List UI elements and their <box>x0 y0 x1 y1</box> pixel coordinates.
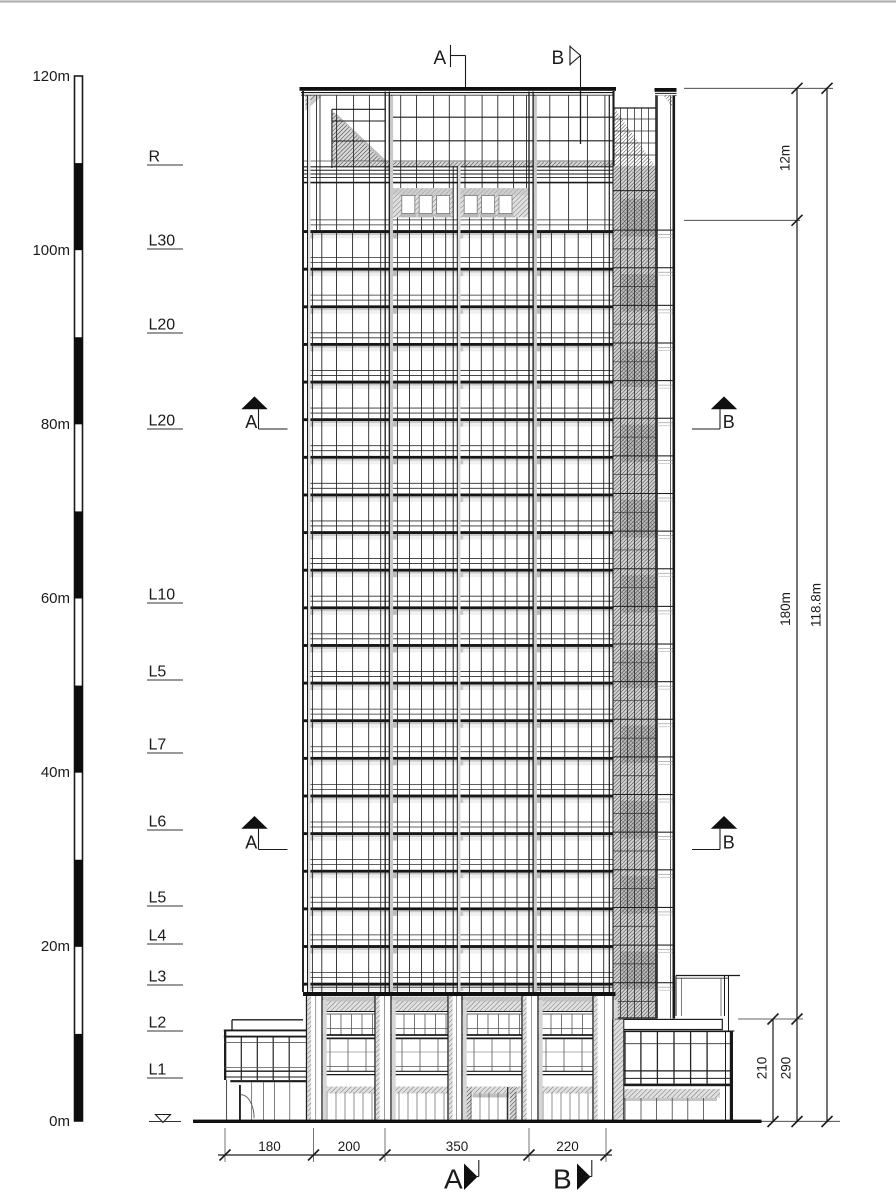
svg-text:60m: 60m <box>41 590 70 607</box>
svg-text:L5: L5 <box>149 890 167 907</box>
svg-text:L30: L30 <box>149 233 176 250</box>
svg-text:A: A <box>245 833 257 853</box>
svg-text:A: A <box>444 1164 463 1195</box>
svg-text:200: 200 <box>338 1139 361 1154</box>
svg-text:B: B <box>723 412 735 432</box>
svg-text:L10: L10 <box>149 587 176 604</box>
svg-text:L5: L5 <box>149 664 167 681</box>
svg-text:L20: L20 <box>149 317 176 334</box>
svg-text:100m: 100m <box>32 242 70 259</box>
svg-text:L3: L3 <box>149 969 167 986</box>
svg-text:120m: 120m <box>32 68 70 85</box>
svg-text:80m: 80m <box>41 416 70 433</box>
svg-text:180: 180 <box>258 1139 281 1154</box>
svg-text:L1: L1 <box>149 1062 167 1079</box>
svg-text:L2: L2 <box>149 1015 167 1032</box>
svg-text:350: 350 <box>446 1139 469 1154</box>
svg-text:A: A <box>434 48 447 69</box>
svg-text:L7: L7 <box>149 737 167 754</box>
svg-text:R: R <box>149 149 161 166</box>
svg-text:220: 220 <box>556 1139 579 1154</box>
svg-text:B: B <box>723 833 735 853</box>
svg-text:L6: L6 <box>149 814 167 831</box>
svg-text:L4: L4 <box>149 928 167 945</box>
svg-text:210: 210 <box>755 1057 770 1080</box>
svg-text:B: B <box>552 48 565 69</box>
svg-text:L20: L20 <box>149 413 176 430</box>
svg-text:118.8m: 118.8m <box>809 583 824 627</box>
svg-text:A: A <box>245 412 257 432</box>
svg-text:180m: 180m <box>778 592 793 626</box>
svg-text:40m: 40m <box>41 764 70 781</box>
svg-text:12m: 12m <box>778 145 793 171</box>
svg-text:0m: 0m <box>49 1113 70 1130</box>
svg-text:B: B <box>553 1164 572 1195</box>
svg-text:20m: 20m <box>41 938 70 955</box>
svg-text:290: 290 <box>779 1057 794 1080</box>
